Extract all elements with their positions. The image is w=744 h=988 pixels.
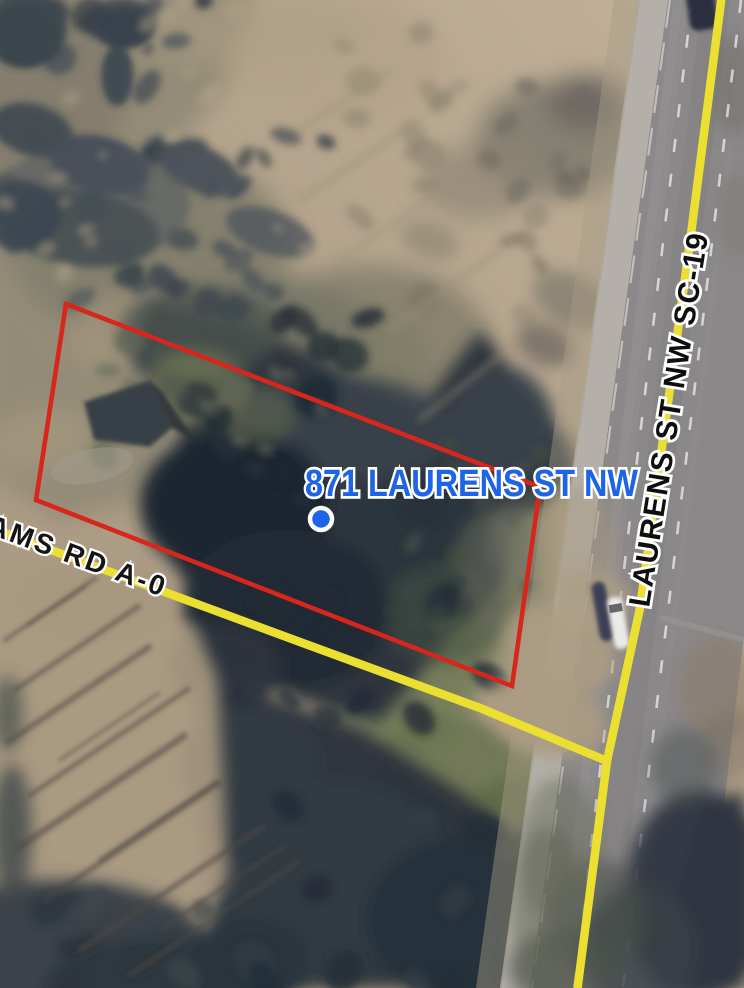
svg-text:871 LAURENS ST NW: 871 LAURENS ST NW (305, 463, 638, 505)
